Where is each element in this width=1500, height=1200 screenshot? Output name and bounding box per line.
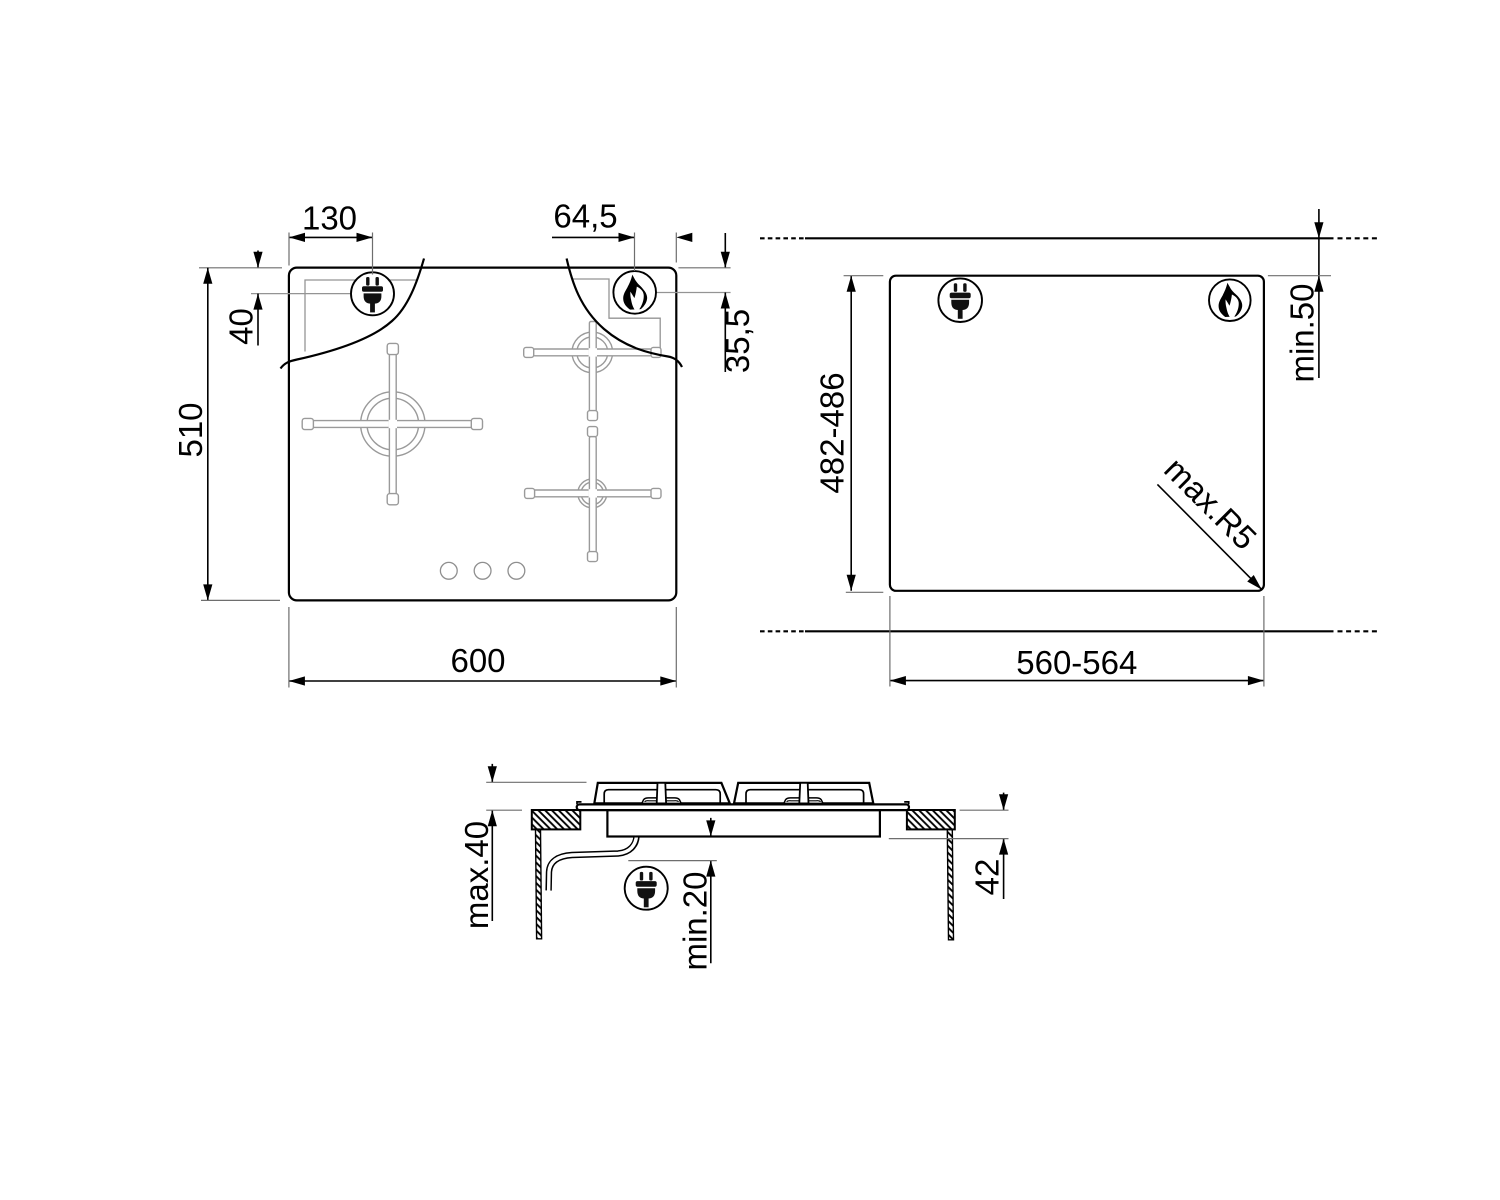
svg-text:min.20: min.20 — [677, 871, 714, 970]
svg-text:482-486: 482-486 — [814, 372, 851, 493]
svg-text:64,5: 64,5 — [553, 198, 617, 235]
svg-text:130: 130 — [302, 200, 357, 237]
svg-text:min.50: min.50 — [1284, 283, 1321, 382]
svg-text:max.40: max.40 — [458, 821, 495, 929]
svg-text:600: 600 — [450, 642, 505, 679]
svg-text:35,5: 35,5 — [719, 309, 756, 373]
svg-text:40: 40 — [223, 308, 260, 345]
svg-text:510: 510 — [172, 402, 209, 457]
svg-text:560-564: 560-564 — [1016, 644, 1137, 681]
svg-text:42: 42 — [969, 859, 1006, 896]
